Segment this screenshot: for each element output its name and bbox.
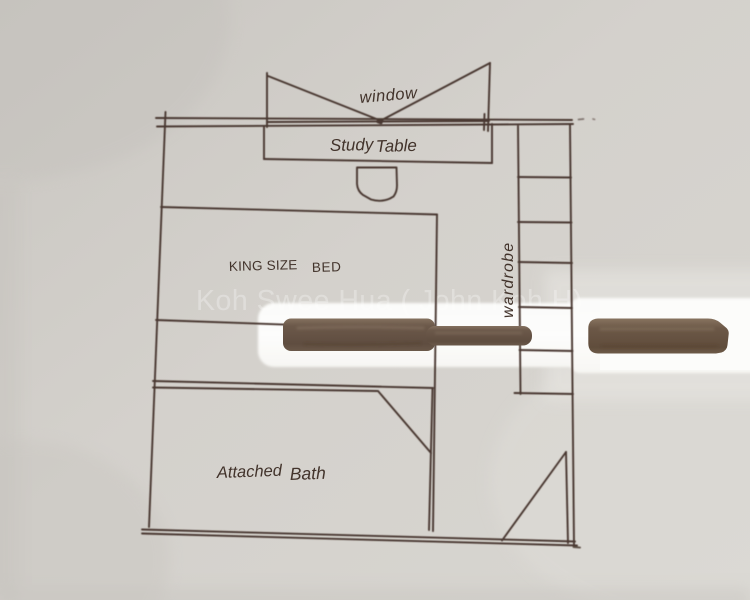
svg-text:Attached: Attached (216, 462, 284, 482)
svg-text:Bath: Bath (289, 463, 326, 484)
svg-text:BED: BED (312, 259, 342, 275)
svg-text:wardrobe: wardrobe (500, 242, 517, 318)
svg-text:KING SIZE: KING SIZE (229, 257, 298, 274)
svg-text:Koh Swee Hua ( John Koh H): Koh Swee Hua ( John Koh H) (196, 285, 583, 317)
svg-text:Table: Table (376, 136, 417, 156)
svg-text:Study: Study (330, 135, 375, 155)
